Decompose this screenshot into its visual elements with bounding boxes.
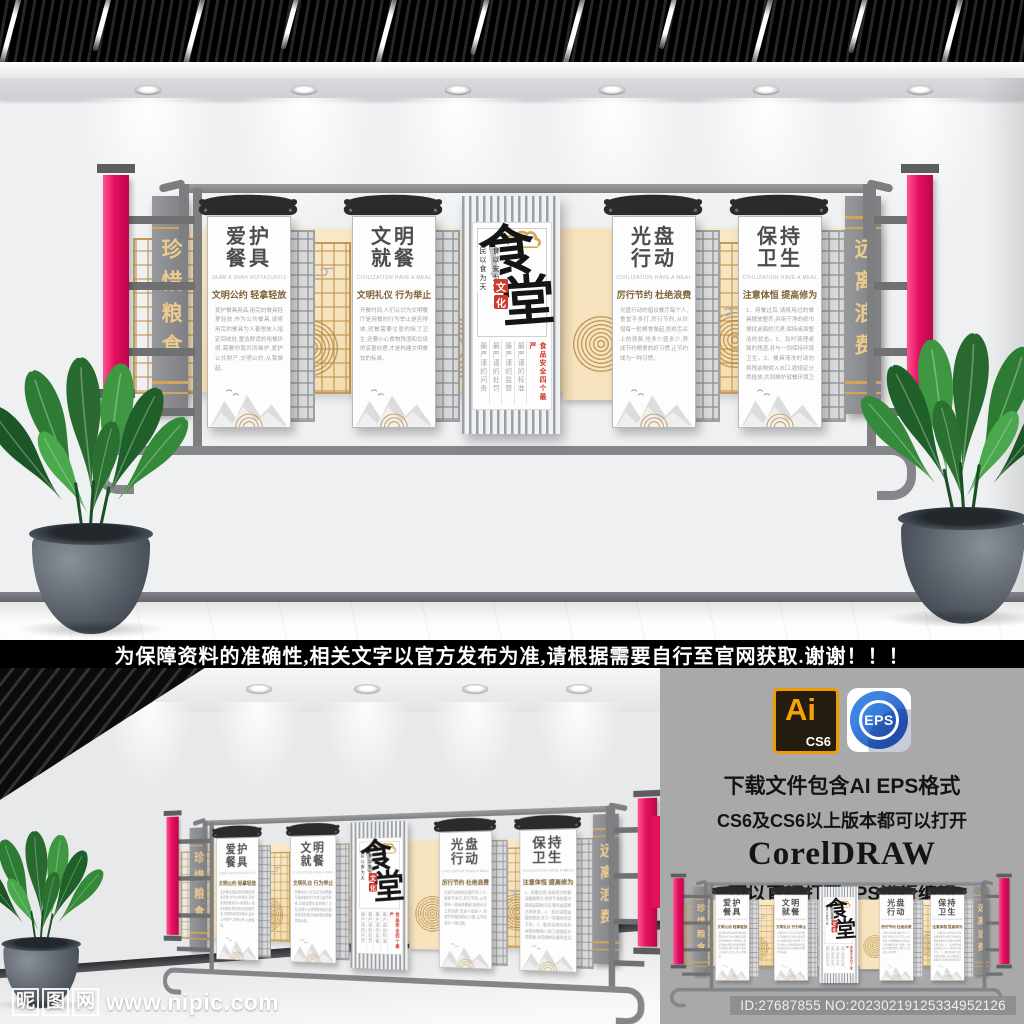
panel-body-text: 1、用餐过后,请将用过的餐具摆放整齐,并用干净的纸巾擦拭桌面的污渍,保持桌面整洁… [739, 307, 821, 380]
disclaimer-bar: 为保障资料的准确性,相关文字以官方发布为准,请根据需要自行至官网获取.谢谢！！！ [0, 640, 1024, 668]
downlight [291, 85, 317, 94]
adobe-illustrator-icon: Ai CS6 [773, 688, 839, 754]
panel-english-caption: JAƎM A ƎVAH ИOITAZIJIVIƆ [717, 919, 747, 921]
scroll-panel-care-tableware: 爱护餐具 JAƎM A ƎVAH ИOITAZIJIVIƆ 文明公约 轻拿轻放 … [216, 837, 258, 960]
motto-left: 民以食为天 [477, 247, 487, 292]
mountain-illustration [739, 380, 821, 427]
panel-body-text: 开餐时间,人们认识为文明餐厅是用餐时行为举止是否得体,就餐需要注意的除了卫生,还… [774, 931, 807, 961]
red-seal-stamps: 文 化 [832, 920, 838, 932]
frame-rung [614, 960, 645, 967]
panel-body-text: 1、用餐过后,请将用过的餐具摆放整齐,并用干净的纸巾擦拭桌面的污渍,保持桌面整洁… [931, 931, 964, 961]
panel-body-text: 开餐时间,人们认识为文明餐厅是用餐时行为举止是否得体,就餐需要注意的除了卫生,还… [353, 307, 435, 380]
frame-rung [177, 913, 211, 918]
panel-title: 文明就餐 [371, 226, 417, 271]
strict-column-red: 食品安全四个最严 [845, 945, 853, 971]
mountain-illustration [931, 961, 964, 980]
scroll-panel-civilized-dining: 文明就餐 CIVILIZATION HAVE A MEAL 文明礼仪 行为举止 … [290, 835, 336, 963]
motto-left: 民以食为天 [359, 853, 365, 881]
four-strictest-columns: 最严谨的问责 最严谨的处罚 最严谨的监管 最严谨的标准 食品安全四个最严 [477, 340, 547, 404]
frame-bottom-hook [616, 986, 645, 1024]
plant-slot-left [0, 362, 196, 640]
panel-body-text: 光盘行动的倡议餐厅每个人,食堂不多打,厉行节约,从珍惜每一粒粮食做起,拒绝舌尖上… [440, 890, 492, 938]
scroll-header-ornament [210, 823, 263, 842]
panel-subtitle: 厉行节约 杜绝浪费 [442, 878, 489, 887]
ceiling-light-strip [562, 0, 586, 62]
cafeteria-culture-wall: 珍惜粮食 远离浪费 爱护餐具 JAƎM A ƎVAH ИOITAZIJIVIƆ … [163, 780, 660, 1023]
center-panel-canteen-culture: 民以食为天 食以安为先 食 堂 文 化 最严谨的问责 最严谨的处罚 最严谨的监管… [462, 196, 560, 434]
frame-corner-hook [704, 882, 708, 904]
ceiling-light-strip [92, 0, 112, 52]
format-icons: Ai CS6 EPS [660, 688, 1024, 754]
ai-label: Ai [785, 692, 816, 728]
pink-pillar [167, 817, 179, 935]
eps-file-icon: EPS [847, 688, 911, 752]
downlight [753, 85, 779, 94]
banner-text: 珍惜粮食 [694, 904, 706, 975]
ceiling-light-strip [848, 0, 869, 54]
mountain-illustration [520, 939, 576, 972]
ceiling-light-strip [470, 0, 491, 56]
scroll-panel-clean-plate: 光盘行动 CIVILIZATION HAVE A MEAL 厉行节约 杜绝浪费 … [612, 216, 696, 428]
strict-column: 最严谨的标准 [515, 340, 528, 404]
pink-pillar [673, 878, 684, 964]
panel-title: 文明就餐 [301, 841, 326, 868]
panel-title: 保持卫生 [938, 899, 957, 917]
frame-corner-hook [203, 821, 208, 852]
mountain-illustration [208, 380, 290, 427]
panel-english-caption: JAƎM A ƎVAH ИOITAZIJIVIƆ [212, 275, 287, 281]
download-note-versions: CS6及CS6以上版本都可以打开 [660, 807, 1024, 833]
strict-column: 最严谨的监管 [374, 911, 381, 951]
panel-english-caption: CIVILIZATION HAVE A MEAL [932, 919, 962, 921]
panel-english-caption: CIVILIZATION HAVE A MEAL [881, 919, 911, 921]
downlight [354, 684, 380, 693]
panel-english-caption: JAƎM A ƎVAH ИOITAZIJIVIƆ [219, 872, 257, 876]
panel-title: 爱护餐具 [723, 899, 742, 917]
panel-subtitle: 厉行节约 杜绝浪费 [617, 288, 692, 301]
panel-title: 保持卫生 [532, 836, 563, 867]
frame-bottom-bar [131, 446, 879, 455]
downlight [462, 684, 488, 693]
ceiling-light-strip [374, 0, 398, 62]
panel-subtitle: 文明公约 轻拿轻放 [219, 879, 256, 887]
seal-hua: 化 [369, 883, 377, 892]
scroll-panel-civilized-dining: 文明就餐 CIVILIZATION HAVE A MEAL 文明礼仪 行为举止 … [774, 895, 808, 981]
scroll-header-ornament [432, 815, 499, 836]
downlight [135, 85, 161, 94]
frame-rung [985, 972, 1002, 975]
panel-body-text: 爱护餐具用品,用完的餐具轻拿轻放,作为公共餐具,请将用完的餐具为人着想放入指定回… [716, 931, 749, 961]
panel-subtitle: 文明公约 轻拿轻放 [717, 924, 747, 929]
panel-body-text: 爱护餐具用品,用完的餐具轻拿轻放,作为公共餐具,请将用完的餐具为人着想放入指定回… [208, 307, 290, 380]
plant-slot-right [853, 338, 1024, 632]
strict-column: 最严谨的处罚 [366, 911, 373, 951]
panel-english-caption: CIVILIZATION HAVE A MEAL [442, 869, 489, 873]
frame-rung [125, 216, 195, 224]
scroll-header-ornament [711, 885, 754, 897]
pink-pillar-edge [651, 816, 660, 908]
panel-title: 保持卫生 [757, 226, 803, 271]
pink-pillar [999, 878, 1010, 964]
mountain-illustration [440, 937, 492, 969]
site-url: www.nipic.com [106, 989, 279, 1016]
mountain-illustration [880, 961, 913, 980]
scroll-header-ornament [926, 885, 969, 897]
strict-column: 最严谨的标准 [381, 911, 388, 951]
plant-pot [32, 532, 150, 634]
showroom-angled-view: 珍惜粮食 远离浪费 爱护餐具 JAƎM A ƎVAH ИOITAZIJIVIƆ … [0, 668, 660, 1024]
potted-plant [0, 362, 196, 640]
strict-column: 最严谨的问责 [359, 911, 366, 950]
frame-rung [177, 839, 211, 844]
panel-title: 光盘行动 [631, 226, 677, 271]
frame-corner-hook [179, 184, 189, 238]
panel-title: 光盘行动 [451, 838, 480, 867]
mountain-illustration [353, 380, 435, 427]
ceiling-light-strip [940, 0, 964, 62]
strict-column: 最严谨的处罚 [490, 340, 503, 404]
panel-body-text: 光盘行动的倡议餐厅每个人,食堂不多打,厉行节约,从珍惜每一粒粮食做起,拒绝舌尖上… [880, 931, 913, 961]
four-strictest-columns: 最严谨的问责 最严谨的处罚 最严谨的监管 最严谨的标准 食品安全四个最严 [359, 911, 400, 951]
panel-subtitle: 注意体恒 提高修为 [932, 924, 962, 929]
center-panel-canteen-culture: 民以食为天 食以安为先 食 堂 文 化 最严谨的问责 最严谨的处罚 最严谨的监管… [351, 821, 408, 970]
downlight [246, 684, 272, 693]
mountain-illustration [291, 933, 336, 963]
mountain-illustration [774, 961, 807, 980]
cafeteria-culture-wall: 珍惜粮食 远离浪费 爱护餐具 JAƎM A ƎVAH ИOITAZIJIVIƆ … [95, 150, 940, 495]
red-seal-stamps: 文 化 [494, 279, 508, 309]
download-note-formats: 下载文件包含AI EPS格式 [660, 770, 1024, 800]
strict-column-red: 食品安全四个最严 [527, 340, 547, 404]
panel-english-caption: CIVILIZATION HAVE A MEAL [616, 275, 691, 281]
scroll-header-ornament [340, 192, 446, 222]
scroll-panel-civilized-dining: 文明就餐 CIVILIZATION HAVE A MEAL 文明礼仪 行为举止 … [352, 216, 436, 428]
panel-english-caption: CIVILIZATION HAVE A MEAL [356, 275, 431, 281]
ceiling-light-strip [750, 0, 774, 62]
scroll-header-ornament [600, 192, 706, 222]
strict-column: 最严谨的问责 [477, 340, 490, 404]
motto-left: 民以食为天 [825, 907, 829, 925]
pink-pillar [103, 175, 129, 387]
showroom-front-view: 珍惜粮食 远离浪费 爱护餐具 JAƎM A ƎVAH ИOITAZIJIVIƆ … [0, 0, 1024, 640]
panel-title: 光盘行动 [887, 899, 906, 917]
mountain-illustration [613, 380, 695, 427]
frame-rung [682, 895, 710, 898]
frame-rung [682, 948, 710, 951]
wall-slot-angled: 珍惜粮食 远离浪费 爱护餐具 JAƎM A ƎVAH ИOITAZIJIVIƆ … [163, 780, 660, 1023]
light-soffit [0, 78, 1024, 100]
panel-body-text: 光盘行动的倡议餐厅每个人,食堂不多打,厉行节约,从珍惜每一粒粮食做起,拒绝舌尖上… [613, 307, 695, 380]
seal-wen: 文 [494, 279, 508, 293]
panel-subtitle: 文明礼仪 行为举止 [293, 879, 334, 887]
frame-rung [177, 876, 211, 881]
scroll-header-ornament [769, 885, 812, 897]
panel-title: 文明就餐 [782, 899, 801, 917]
panel-body-text: 1、用餐过后,请将用过的餐具摆放整齐,并用干净的纸巾擦拭桌面的污渍,保持桌面整洁… [520, 890, 576, 940]
strict-column: 最严谨的监管 [502, 340, 515, 404]
panel-english-caption: CIVILIZATION HAVE A MEAL [293, 871, 334, 875]
panel-subtitle: 文明公约 轻拿轻放 [212, 288, 287, 301]
scroll-panel-keep-hygiene: 保持卫生 CIVILIZATION HAVE A MEAL 注意体恒 提高修为 … [520, 829, 577, 973]
panel-body-text: 开餐时间,人们认识为文明餐厅是用餐时行为举止是否得体,就餐需要注意的除了卫生,还… [291, 890, 336, 934]
panel-title: 爱护餐具 [226, 843, 249, 869]
plant-pot [901, 517, 1024, 624]
center-panel-inner: 民以食为天 食以安为先 食 堂 文 化 最严谨的问责 最严谨的处罚 最严谨的监管… [356, 837, 402, 955]
scroll-header-ornament [875, 885, 918, 897]
scroll-header-ornament [284, 820, 342, 840]
panel-title: 爱护餐具 [226, 226, 272, 271]
frame-rung [682, 921, 710, 924]
frame-rung [682, 972, 710, 975]
panel-english-caption: CIVILIZATION HAVE A MEAL [522, 869, 573, 873]
logo-char: 网 [72, 988, 99, 1016]
panel-subtitle: 文明礼仪 行为举止 [776, 924, 806, 929]
ceiling-light-strip [182, 0, 206, 62]
four-strictest-columns: 最严谨的问责 最严谨的处罚 最严谨的监管 最严谨的标准 食品安全四个最严 [825, 945, 853, 971]
wall-slot-front: 珍惜粮食 远离浪费 爱护餐具 JAƎM A ƎVAH ИOITAZIJIVIƆ … [95, 150, 940, 495]
ai-version-label: CS6 [806, 734, 831, 749]
scroll-panel-care-tableware: 爱护餐具 JAƎM A ƎVAH ИOITAZIJIVIƆ 文明公约 轻拿轻放 … [715, 895, 749, 981]
seal-wen: 文 [369, 873, 377, 882]
frame-bottom-bar [685, 988, 988, 992]
cream-pillar [563, 230, 617, 400]
ceiling-light-strip [0, 0, 23, 62]
logo-char: 图 [42, 988, 69, 1016]
black-slat-ceiling [0, 0, 1024, 62]
cafeteria-culture-wall: 珍惜粮食 远离浪费 爱护餐具 JAƎM A ƎVAH ИOITAZIJIVIƆ … [670, 868, 1012, 1008]
frame-rung [125, 348, 195, 356]
frame-rung [177, 947, 211, 953]
scroll-header-ornament [512, 812, 584, 834]
scroll-panel-keep-hygiene: 保持卫生 CIVILIZATION HAVE A MEAL 注意体恒 提高修为 … [930, 895, 964, 981]
downlight [566, 684, 592, 693]
wall-slot-mini-preview: 珍惜粮食 远离浪费 爱护餐具 JAƎM A ƎVAH ИOITAZIJIVIƆ … [670, 868, 1012, 1008]
scroll-panel-keep-hygiene: 保持卫生 CIVILIZATION HAVE A MEAL 注意体恒 提高修为 … [738, 216, 822, 428]
ceiling-beam [0, 62, 1024, 78]
seal-hua: 化 [494, 295, 508, 309]
eps-label: EPS [864, 712, 894, 728]
mountain-illustration [716, 961, 749, 980]
frame-rung [125, 282, 195, 290]
ceiling-light-strip [659, 0, 679, 50]
seal-wen: 文 [832, 920, 838, 926]
logo-char: 昵 [12, 988, 39, 1016]
plant-slot [0, 834, 108, 1013]
site-watermark: 昵图网 www.nipic.com [12, 988, 279, 1016]
scroll-panel-clean-plate: 光盘行动 CIVILIZATION HAVE A MEAL 厉行节约 杜绝浪费 … [439, 831, 492, 969]
scroll-header-ornament [195, 192, 301, 222]
panel-body-text: 爱护餐具用品,用完的餐具轻拿轻放,作为公共餐具,请将用完的餐具为人着想放入指定回… [217, 890, 258, 932]
center-panel-inner: 民以食为天 食以安为先 食 堂 文 化 最严谨的问责 最严谨的处罚 最严谨的监管… [823, 897, 855, 973]
frame-bottom-hook [670, 988, 686, 1007]
banner-text: 珍惜粮食 [191, 851, 205, 951]
downlight [445, 85, 471, 94]
download-info-panel: Ai CS6 EPS 下载文件包含AI EPS格式 CS6及CS6以上版本都可以… [660, 668, 1024, 1024]
panel-subtitle: 文明礼仪 行为举止 [357, 288, 432, 301]
strict-column-red: 食品安全四个最严 [388, 911, 400, 951]
potted-plant [853, 338, 1024, 632]
center-panel-canteen-culture: 民以食为天 食以安为先 食 堂 文 化 最严谨的问责 最严谨的处罚 最严谨的监管… [819, 887, 859, 983]
panel-subtitle: 注意体恒 提高修为 [743, 288, 818, 301]
panel-subtitle: 厉行节约 杜绝浪费 [881, 924, 911, 929]
red-seal-stamps: 文 化 [369, 873, 377, 892]
downlight [599, 85, 625, 94]
panel-english-caption: CIVILIZATION HAVE A MEAL [742, 275, 817, 281]
potted-plant [0, 834, 108, 1013]
scroll-header-ornament [726, 192, 832, 222]
panel-subtitle: 注意体恒 提高修为 [523, 877, 574, 886]
eps-ring: EPS [859, 700, 899, 740]
panel-english-caption: CIVILIZATION HAVE A MEAL [776, 919, 806, 921]
disclaimer-text: 为保障资料的准确性,相关文字以官方发布为准,请根据需要自行至官网获取.谢谢！！！ [115, 640, 910, 669]
center-panel-inner: 民以食为天 食以安为先 食 堂 文 化 最严谨的问责 最严谨的处罚 最严谨的监管… [472, 222, 552, 410]
mountain-illustration [217, 932, 258, 960]
scroll-panel-clean-plate: 光盘行动 CIVILIZATION HAVE A MEAL 厉行节约 杜绝浪费 … [879, 895, 913, 981]
seal-hua: 化 [832, 927, 838, 933]
asset-id-badge: ID:27687855 NO:20230219125334952126 [730, 996, 1016, 1015]
scroll-panel-care-tableware: 爱护餐具 JAƎM A ƎVAH ИOITAZIJIVIƆ 文明公约 轻拿轻放 … [207, 216, 291, 428]
ceiling-light-strip [281, 0, 301, 50]
nipic-logo: 昵图网 [12, 988, 99, 1016]
downlight [907, 85, 933, 94]
stock-image-preview: 珍惜粮食 远离浪费 爱护餐具 JAƎM A ƎVAH ИOITAZIJIVIƆ … [0, 0, 1024, 1024]
